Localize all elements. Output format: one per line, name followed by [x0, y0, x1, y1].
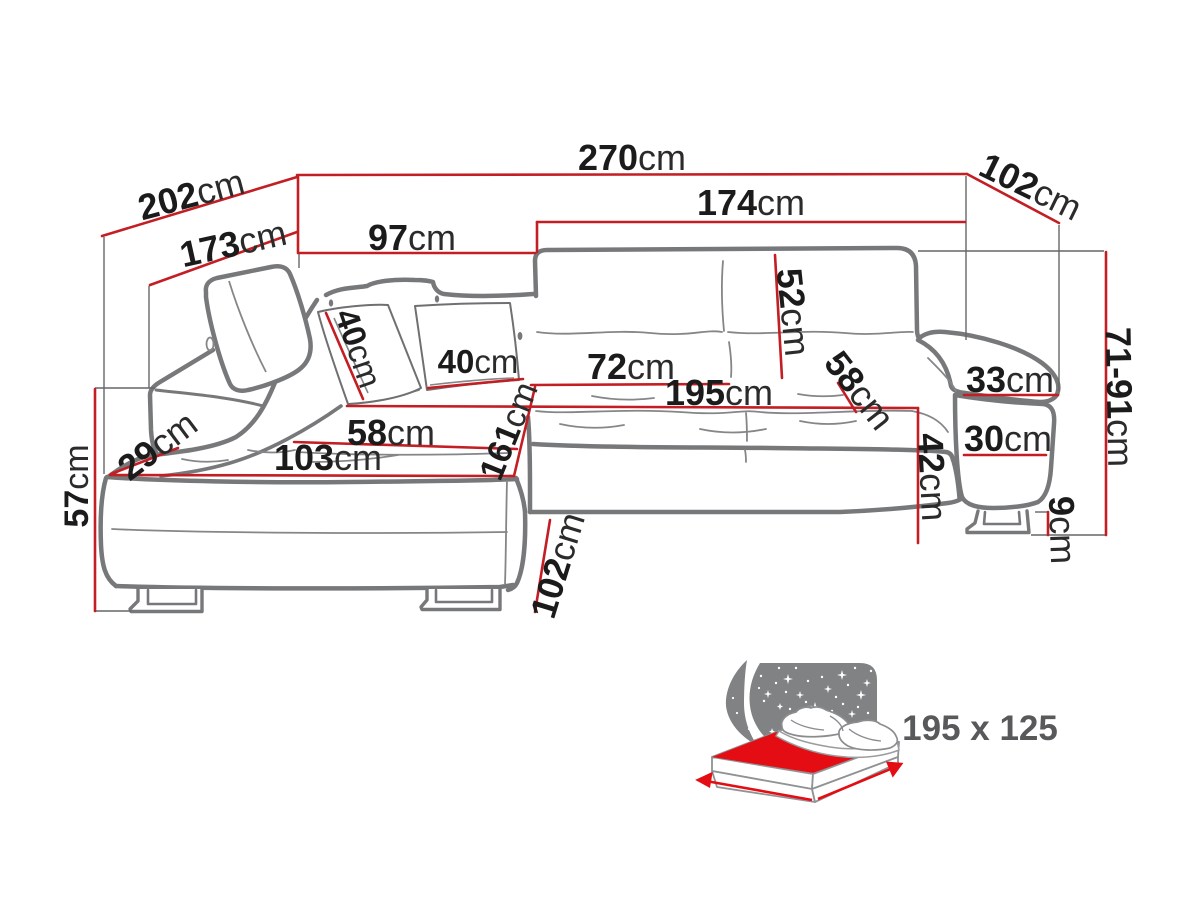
svg-text:42cm: 42cm	[910, 432, 956, 522]
svg-text:30cm: 30cm	[964, 418, 1052, 459]
svg-text:52cm: 52cm	[769, 266, 819, 358]
svg-text:102cm: 102cm	[973, 144, 1088, 228]
svg-text:72cm: 72cm	[587, 346, 675, 387]
svg-text:71-91cm: 71-91cm	[1098, 327, 1141, 468]
svg-text:103cm: 103cm	[274, 437, 382, 478]
svg-text:161cm: 161cm	[472, 377, 545, 486]
svg-text:57cm: 57cm	[58, 444, 96, 527]
svg-text:195cm: 195cm	[665, 372, 773, 413]
svg-text:174cm: 174cm	[697, 182, 805, 223]
svg-text:270cm: 270cm	[578, 137, 686, 178]
svg-text:97cm: 97cm	[368, 217, 456, 258]
svg-text:40cm: 40cm	[438, 343, 519, 380]
svg-text:102cm: 102cm	[522, 507, 593, 622]
svg-text:33cm: 33cm	[966, 359, 1054, 400]
svg-text:202cm: 202cm	[133, 160, 248, 228]
svg-text:9cm: 9cm	[1041, 495, 1084, 564]
svg-text:195 x 125: 195 x 125	[902, 709, 1058, 748]
